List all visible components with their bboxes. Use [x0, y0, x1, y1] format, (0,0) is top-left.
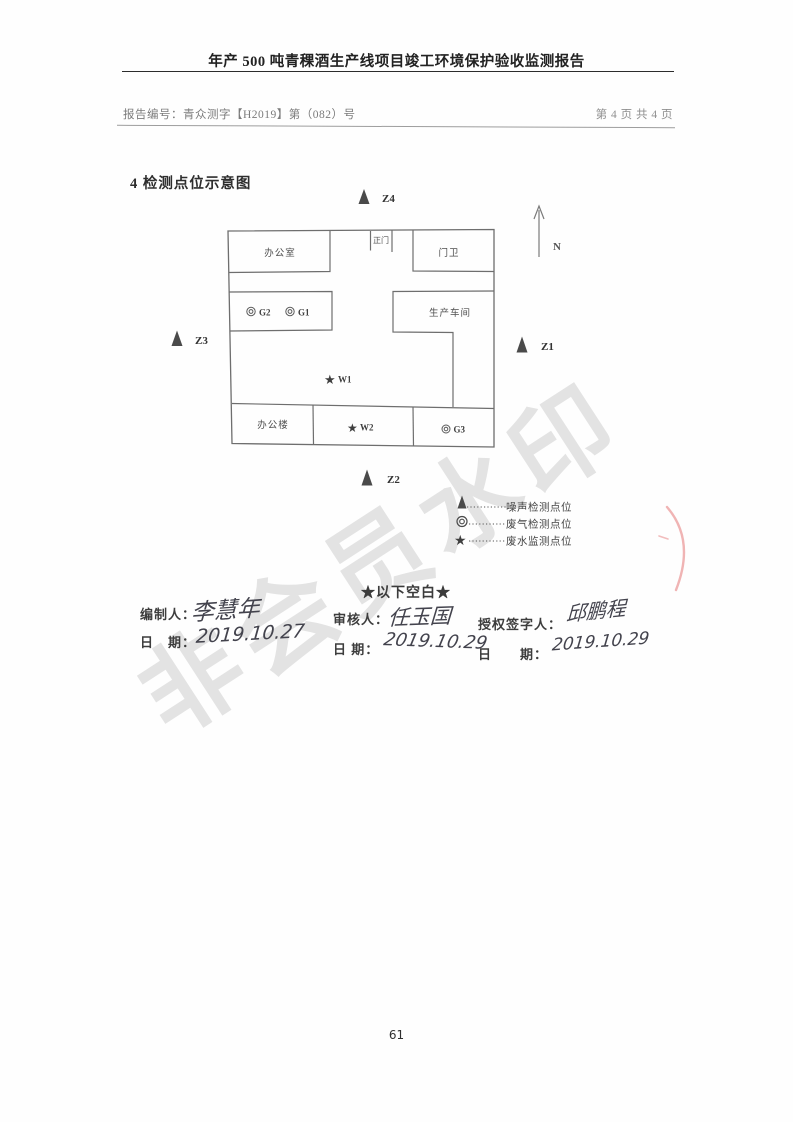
legend-gas-icon-inner — [460, 519, 465, 524]
reviewer-date-value: 2019.10.29 — [382, 629, 489, 653]
z3-label: Z3 — [195, 335, 208, 347]
report-title: 年产 500 吨青稞酒生产线项目竣工环境保护验收监测报告 — [0, 50, 793, 71]
bottom-row-divider-1 — [313, 405, 314, 445]
legend-water-label: 废水监测点位 — [506, 535, 572, 548]
bottom-row-divider-2 — [413, 407, 414, 447]
w2-water-point-icon: ★ — [347, 421, 358, 435]
legend-gas-label: 废气检测点位 — [506, 518, 572, 531]
g1-label: G1 — [298, 308, 310, 318]
preparer-date-label: 日 期： — [140, 632, 196, 651]
authorizer-date-label: 日 期： — [478, 644, 548, 663]
workshop-label: 生产车间 — [429, 307, 471, 319]
reviewer-signature: 任玉国 — [387, 600, 452, 632]
office-room-label: 办公室 — [264, 247, 296, 259]
main-gate-label: 正门 — [373, 235, 389, 245]
g2-label: G2 — [259, 308, 271, 318]
z4-noise-point-icon — [359, 189, 370, 204]
z1-label: Z1 — [541, 341, 554, 353]
blank-below-note: ★以下空白★ — [300, 582, 512, 602]
bottom-row-top-edge — [232, 404, 494, 409]
g1-gas-point-icon — [286, 307, 294, 315]
z1-noise-point-icon — [517, 337, 528, 353]
w1-water-point-icon: ★ — [324, 372, 336, 387]
guard-room-label: 门卫 — [438, 247, 459, 259]
legend-water-icon: ★ — [454, 534, 467, 549]
office-building-label: 办公楼 — [257, 419, 289, 431]
z3-noise-point-icon — [172, 331, 183, 347]
report-page: 非会员水印 年产 500 吨青稞酒生产线项目竣工环境保护验收监测报告 报告编号：… — [0, 0, 793, 1122]
g3-gas-point-icon-inner — [444, 427, 448, 431]
legend-noise-icon — [458, 496, 467, 509]
north-label: N — [553, 241, 561, 253]
z4-label: Z4 — [382, 193, 395, 205]
site-plan-diagram: Z4 N 办公室 正门 门卫 G2 G1 — [120, 183, 590, 563]
report-rule — [117, 125, 675, 128]
authorizer-date-value: 2019.10.29 — [551, 629, 650, 656]
title-rule — [122, 71, 674, 72]
z2-label: Z2 — [387, 474, 400, 486]
legend-gas-icon — [457, 517, 467, 527]
authorizer-signature: 邱鹏程 — [566, 592, 627, 628]
authorizer-label: 授权签字人： — [478, 614, 562, 633]
reviewer-label: 审核人： — [333, 609, 389, 628]
preparer-date-value: 2019.10.27 — [195, 620, 306, 648]
g3-gas-point-icon — [442, 425, 450, 433]
g2-gas-point-icon-inner — [249, 310, 253, 314]
footer-page-number: 61 — [0, 1028, 793, 1042]
w2-label: W2 — [360, 423, 374, 433]
g3-label: G3 — [454, 425, 466, 435]
legend-noise-label: 噪声检测点位 — [506, 501, 572, 514]
preparer-label: 编制人： — [140, 604, 196, 623]
g1-gas-point-icon-inner — [288, 310, 292, 314]
site-boundary — [228, 230, 494, 448]
red-seal-arc — [648, 498, 698, 598]
report-meta-row: 报告编号：青众测字【H2019】第（082）号 第 4 页 共 4 页 — [123, 106, 673, 122]
w1-label: W1 — [338, 375, 352, 385]
g2-gas-point-icon — [247, 307, 255, 315]
report-number: 报告编号：青众测字【H2019】第（082）号 — [123, 106, 356, 122]
page-indicator: 第 4 页 共 4 页 — [596, 106, 673, 122]
z2-noise-point-icon — [362, 470, 373, 486]
reviewer-date-label: 日 期： — [333, 639, 379, 658]
preparer-signature: 李慧年 — [190, 589, 260, 628]
gas-points-box — [230, 292, 333, 332]
